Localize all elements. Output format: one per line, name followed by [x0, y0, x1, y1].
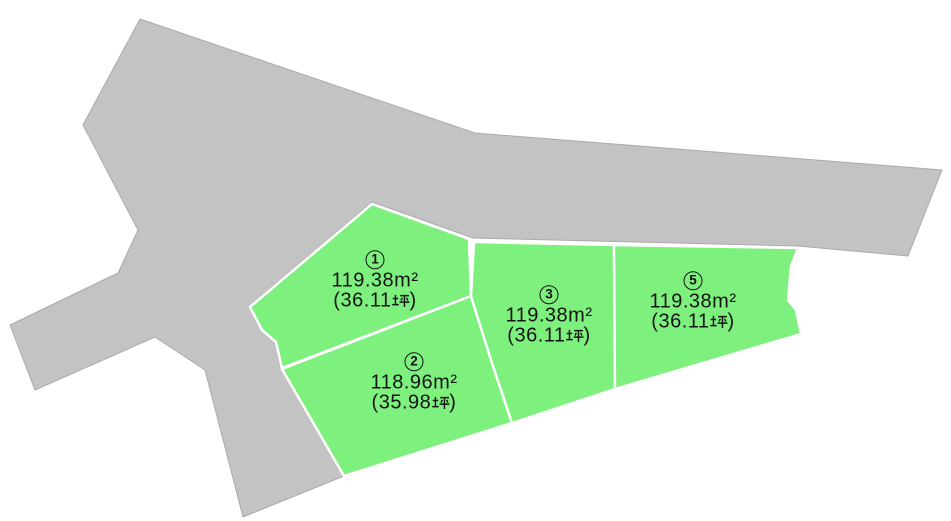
site-plan-drawing — [0, 0, 951, 521]
plot-1-label: 1 119.38m² (36.11) — [331, 246, 418, 310]
tsubo-kanji-icon — [710, 311, 728, 329]
plot-5-tsubo-close: ) — [728, 310, 735, 332]
plot-3-label: 3 119.38m² (36.11) — [505, 281, 592, 345]
plot-1-number-row: 1 — [331, 246, 418, 269]
tsubo-kanji-icon — [566, 325, 584, 343]
plot-5-circled-number: 5 — [683, 271, 702, 290]
site-plan-canvas: 1 119.38m² (36.11) 2 118.96m² (35.98) 3 … — [0, 0, 951, 521]
plot-2-circled-number: 2 — [404, 352, 423, 371]
plot-5-tsubo-value: (36.11 — [651, 310, 709, 332]
plot-5-label: 5 119.38m² (36.11) — [649, 267, 736, 331]
plot-2-label: 2 118.96m² (35.98) — [370, 348, 457, 412]
tsubo-kanji-icon — [431, 392, 449, 410]
plot-2-number-row: 2 — [370, 348, 457, 371]
plot-3-circled-number: 3 — [539, 285, 558, 304]
plot-1-tsubo-value: (36.11 — [333, 289, 391, 311]
plot-1-tsubo-text: (36.11) — [331, 290, 418, 310]
plot-2-tsubo-text: (35.98) — [370, 392, 457, 412]
plot-3-tsubo-value: (36.11 — [507, 324, 565, 346]
plot-1-area-text: 119.38m² — [331, 271, 418, 290]
plot-5-area-text: 119.38m² — [649, 292, 736, 311]
plot-3-area-text: 119.38m² — [505, 306, 592, 325]
tsubo-kanji-icon — [392, 290, 410, 308]
plot-5-number-row: 5 — [649, 267, 736, 290]
plot-1-circled-number: 1 — [365, 250, 384, 269]
plot-2-tsubo-value: (35.98 — [372, 391, 432, 413]
plot-2-tsubo-close: ) — [449, 391, 456, 413]
plot-5-tsubo-text: (36.11) — [649, 311, 736, 331]
plot-3-number-row: 3 — [505, 281, 592, 304]
plot-1-tsubo-close: ) — [410, 289, 417, 311]
plot-2-area-text: 118.96m² — [370, 373, 457, 392]
plot-3-tsubo-text: (36.11) — [505, 325, 592, 345]
plot-3-tsubo-close: ) — [584, 324, 591, 346]
